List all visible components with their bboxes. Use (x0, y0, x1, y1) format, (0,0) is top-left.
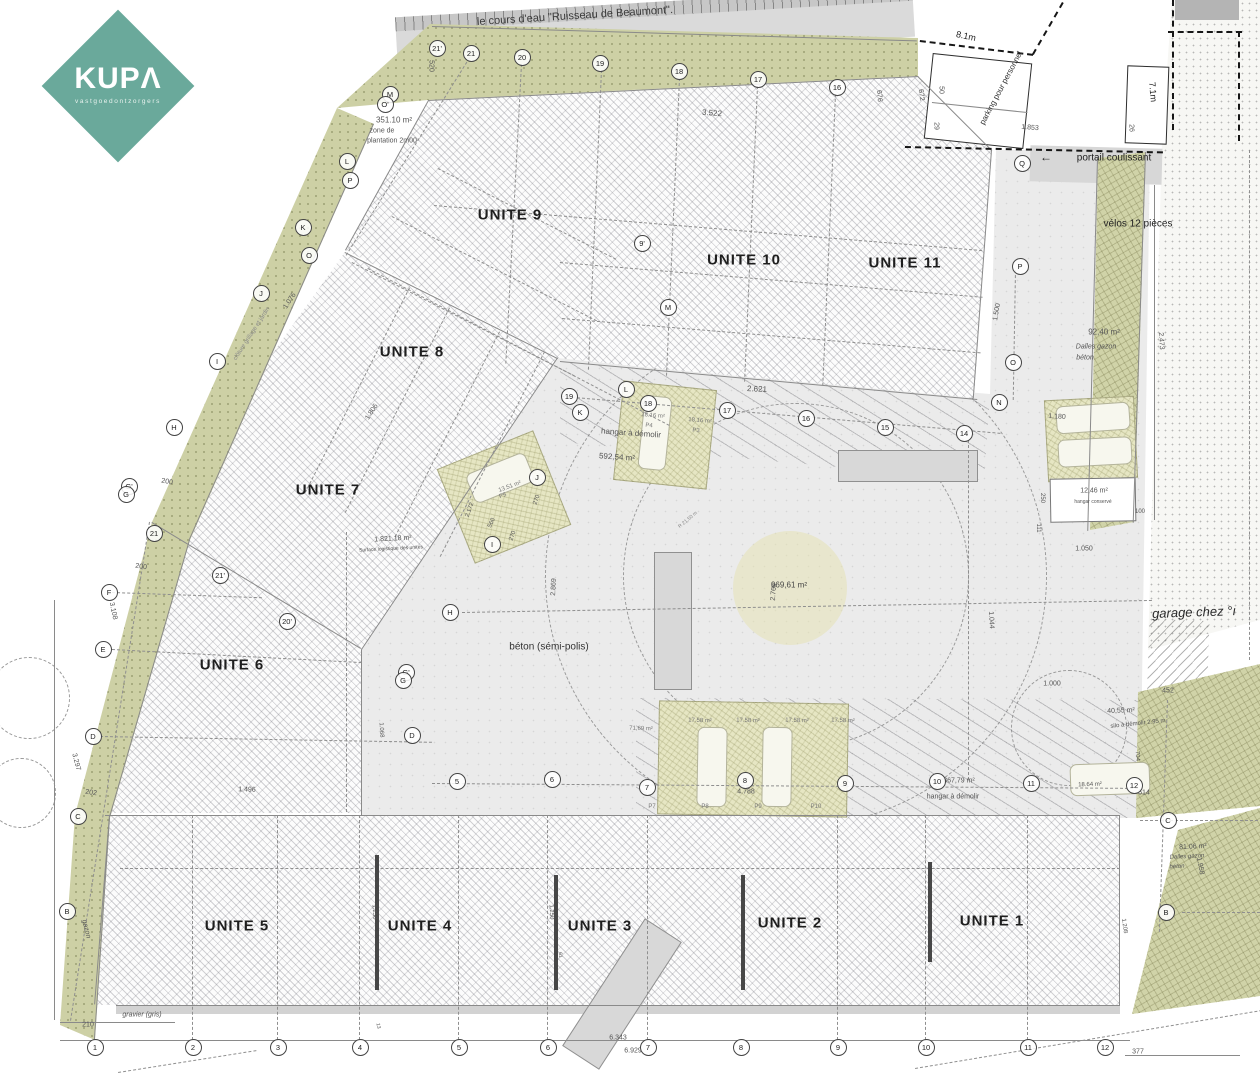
grid-marker-C: C (70, 808, 87, 825)
grid-marker-19: 19 (561, 388, 578, 405)
annotation-label: 3.297 (70, 753, 81, 772)
annotation-label: P10 (811, 804, 822, 810)
boundary-line (361, 650, 362, 815)
annotation-label: portail coulissant (1077, 153, 1151, 164)
logo-title: KUPΛ (36, 62, 200, 96)
grid-marker-K: K (572, 404, 589, 421)
annotation-label: 1.853 (1021, 124, 1039, 132)
grid-marker-J: J (529, 469, 546, 486)
grid-marker-3: 3 (270, 1039, 287, 1056)
grid-marker-2: 2 (185, 1039, 202, 1056)
grid-marker-21: 21 (146, 525, 163, 542)
car-shape (696, 727, 727, 808)
logo-subtitle: vastgoedontzorgers (36, 98, 200, 105)
annotation-label: ← (1040, 150, 1052, 164)
boundary-line (116, 1005, 1120, 1006)
grid-line (968, 440, 969, 780)
annotation-label: 3.522 (702, 108, 723, 118)
grid-marker-Q: Q (1014, 155, 1031, 172)
grid-marker-B: B (1158, 904, 1175, 921)
grid-marker-8: 8 (733, 1039, 750, 1056)
car-shape (1055, 401, 1131, 434)
annotation-label: 202 (85, 789, 98, 798)
building (654, 552, 692, 690)
annotation-label: P7 (648, 804, 655, 810)
unit-label: UNITE 3 (568, 918, 633, 935)
annotation-label: 2.473 (1157, 332, 1165, 350)
grid-line (547, 815, 548, 1040)
wall-stub (741, 875, 745, 990)
annotation-label: béton (sémi-polis) (509, 642, 588, 653)
grid-marker-5: 5 (451, 1039, 468, 1056)
annotation-label: hangar conservé (1074, 499, 1111, 505)
unit-label: UNITE 5 (205, 918, 270, 935)
annotation-label: 250 (1039, 493, 1045, 503)
annotation-label: 111 (1035, 523, 1041, 532)
unit-label: UNITE 1 (960, 913, 1025, 930)
car-shape (1057, 436, 1132, 468)
grid-marker-14: 14 (956, 425, 973, 442)
annotation-label: 210 (82, 1022, 94, 1029)
property-boundary-line (1238, 31, 1240, 141)
grid-marker-G: G (395, 672, 412, 689)
grid-marker-1: 1 (87, 1039, 104, 1056)
grid-marker-9': 9' (634, 235, 651, 252)
annotation-label: 92,40 m² (1088, 328, 1120, 337)
car-shape (761, 727, 792, 808)
site-plan: KUPΛ vastgoedontzorgers 21'212019181716M… (0, 0, 1260, 1080)
grid-marker-I: I (209, 353, 226, 370)
unit-label: UNITE 8 (380, 344, 445, 361)
property-boundary-line (1172, 0, 1174, 130)
grid-marker-6: 6 (544, 771, 561, 788)
grid-marker-16: 16 (798, 410, 815, 427)
grid-marker-C: C (1160, 812, 1177, 829)
unit-label: UNITE 11 (868, 255, 941, 272)
grid-marker-L: L (618, 381, 635, 398)
grid-marker-18: 18 (640, 395, 657, 412)
annotation-label: 1.250 (548, 904, 555, 919)
annotation-label: 17.58 m² (736, 718, 760, 725)
wall-stub (375, 855, 379, 990)
grid-marker-12: 12 (1126, 777, 1143, 794)
annotation-label: 672 (917, 89, 925, 101)
annotation-label: 18.64 m² (1078, 782, 1102, 789)
wall-stub (554, 875, 558, 990)
grid-marker-4: 4 (352, 1039, 369, 1056)
annotation-label: 71,69 m² (629, 726, 653, 733)
grid-marker-18: 18 (671, 63, 688, 80)
turning-circle (0, 758, 56, 828)
annotation-label: 17.58 m² (688, 718, 712, 725)
annotation-label: P3 (692, 428, 700, 435)
grid-marker-9: 9 (830, 1039, 847, 1056)
staff-parking-box-2 (1125, 65, 1170, 144)
grid-line (1249, 150, 1250, 660)
grid-marker-P: P (342, 172, 359, 189)
unit-label: UNITE 10 (707, 252, 781, 269)
annotation-label: béton (1169, 864, 1184, 871)
unit-label: UNITE 7 (296, 482, 361, 499)
property-boundary-line (1168, 31, 1242, 33)
annotation-label: 81.06 m² (1179, 843, 1207, 851)
annotation-label: zone de (370, 128, 395, 135)
annotation-label: 351.10 m² (376, 116, 412, 125)
annotation-label: 1.496 (238, 786, 256, 794)
grid-marker-7: 7 (640, 1039, 657, 1056)
wall-stub (928, 862, 932, 962)
annotation-label: 520 (428, 60, 435, 72)
annotation-label: 40,55 m² (1107, 707, 1135, 715)
annotation-label: 2.869 (550, 578, 558, 596)
annotation-label: gravier (gris) (122, 1012, 161, 1019)
annotation-label: P8 (701, 804, 708, 810)
grid-marker-P: P (1012, 258, 1029, 275)
annotation-label: 13 (375, 1023, 382, 1030)
annotation-label: 367,79 m² (943, 778, 975, 785)
grid-marker-9: 9 (837, 775, 854, 792)
grid-marker-20': 20' (279, 613, 296, 630)
grid-marker-6: 6 (540, 1039, 557, 1056)
grid-line (647, 815, 648, 1040)
grid-line (346, 532, 347, 812)
annotation-label: Dalles gazon (1076, 344, 1116, 351)
grid-marker-M: M (660, 299, 677, 316)
grid-line (1182, 912, 1260, 913)
boundary-line (1154, 185, 1155, 520)
grid-line (837, 815, 838, 1040)
annotation-label: 8.1m (955, 29, 977, 43)
annotation-label: 7.1m (1147, 82, 1159, 103)
annotation-label: 2.621 (747, 384, 767, 394)
grid-line (359, 815, 360, 1040)
annotation-label: 4.788 (737, 789, 755, 796)
annotation-label: 6.343 (609, 1035, 627, 1042)
annotation-label: P4 (645, 423, 653, 430)
grid-marker-H: H (166, 419, 183, 436)
annotation-label: 1.180 (1048, 413, 1066, 421)
annotation-label: plantation 2m00 (367, 138, 417, 145)
grid-marker-O: O (301, 247, 318, 264)
grid-marker-H: H (442, 604, 459, 621)
annotation-label: P9 (754, 804, 761, 810)
annotation-label: 452 (1162, 688, 1174, 695)
grid-line (458, 815, 459, 1040)
annotation-label: 50 (938, 86, 945, 94)
annotation-label: 1.250 (371, 904, 378, 919)
grid-marker-10: 10 (929, 773, 946, 790)
unit-label: UNITE 2 (758, 915, 823, 932)
grid-line (277, 815, 278, 1040)
property-boundary-line (1032, 2, 1064, 55)
annotation-label: 1.044 (987, 611, 995, 629)
grid-marker-K: K (295, 219, 312, 236)
neighbor-building-bar (1175, 0, 1239, 20)
grid-marker-19: 19 (592, 55, 609, 72)
grid-marker-17: 17 (750, 71, 767, 88)
grid-marker-7: 7 (639, 779, 656, 796)
grid-marker-8: 8 (737, 772, 754, 789)
grid-marker-N: N (991, 394, 1008, 411)
grid-marker-20: 20 (514, 49, 531, 66)
boundary-line (60, 1022, 175, 1023)
grid-marker-F: F (101, 584, 118, 601)
annotation-label: vélos 12 pièces (1104, 219, 1173, 230)
annotation-label: garage chez °ı (1152, 603, 1236, 621)
annotation-label: 12,46 m² (1080, 488, 1108, 495)
annotation-label: 200 (135, 563, 148, 572)
unit-label: UNITE 9 (478, 207, 543, 224)
grid-marker-B: B (59, 903, 76, 920)
annotation-label: 61 (557, 952, 563, 958)
grid-marker-L: L (339, 153, 356, 170)
annotation-label: 1.068 (378, 722, 385, 737)
grid-marker-O': O' (377, 96, 394, 113)
annotation-label: 17.58 m² (831, 718, 855, 725)
boundary-line (54, 600, 55, 1020)
grid-marker-17: 17 (719, 402, 736, 419)
annotation-label: 200 (161, 478, 174, 487)
grid-marker-O: O (1005, 354, 1022, 371)
boundary-line (105, 815, 1120, 816)
grid-marker-10: 10 (918, 1039, 935, 1056)
grid-marker-21: 21 (463, 45, 480, 62)
grid-marker-D: D (404, 727, 421, 744)
grid-marker-J: J (253, 285, 270, 302)
grid-marker-I: I (484, 536, 501, 553)
grid-marker-E: E (95, 641, 112, 658)
grid-marker-21': 21' (212, 567, 229, 584)
annotation-label: 676 (875, 90, 883, 102)
grid-line (1140, 820, 1258, 821)
annotation-label: 377 (1132, 1049, 1144, 1056)
kupa-logo: KUPΛ vastgoedontzorgers (36, 6, 200, 170)
unit-label: UNITE 6 (200, 657, 265, 674)
annotation-label: 26 (1128, 124, 1135, 132)
grid-marker-21': 21' (429, 40, 446, 57)
grid-marker-12: 12 (1097, 1039, 1114, 1056)
grid-line (1027, 815, 1028, 1040)
boundary-line (60, 1040, 1130, 1041)
annotation-label: hangar à démolir (927, 794, 980, 801)
annotation-label: 3.108 (108, 602, 118, 621)
annotation-label: 1.000 (1043, 681, 1061, 688)
boundary-line (1119, 815, 1120, 1005)
grid-line (192, 815, 193, 1040)
grid-marker-11: 11 (1023, 775, 1040, 792)
annotation-label: 1.208 (1120, 918, 1128, 934)
grid-marker-5: 5 (449, 773, 466, 790)
annotation-label: 100 (1135, 509, 1145, 515)
annotation-label: 17.58 m² (785, 718, 809, 725)
turning-circle (0, 657, 70, 739)
annotation-label: 29 (933, 122, 940, 130)
unit-label: UNITE 4 (388, 918, 453, 935)
building (838, 450, 978, 482)
grid-marker-G: G (118, 486, 135, 503)
grid-marker-11: 11 (1020, 1039, 1037, 1056)
grid-line (120, 868, 1120, 869)
annotation-label: 704 (1134, 751, 1141, 761)
grid-marker-15: 15 (877, 419, 894, 436)
grid-line (925, 815, 926, 1040)
grid-marker-D: D (85, 728, 102, 745)
grid-marker-16: 16 (829, 79, 846, 96)
annotation-label: béton (1076, 355, 1094, 362)
annotation-label: 1.050 (1075, 546, 1093, 553)
